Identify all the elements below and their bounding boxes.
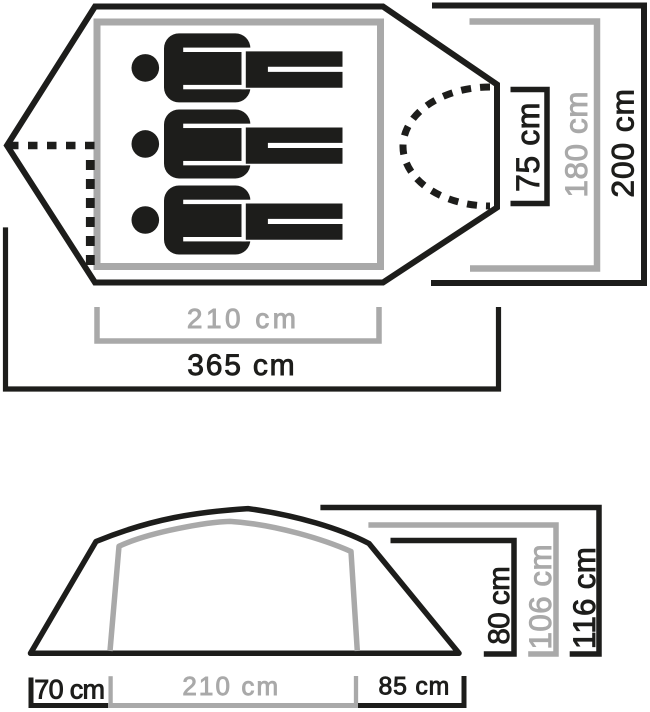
svg-text:75 cm: 75 cm bbox=[510, 102, 546, 192]
svg-text:200 cm: 200 cm bbox=[604, 88, 640, 197]
svg-text:85 cm: 85 cm bbox=[379, 674, 451, 701]
svg-text:365 cm: 365 cm bbox=[187, 349, 296, 382]
svg-text:180 cm: 180 cm bbox=[558, 91, 594, 198]
svg-text:116 cm: 116 cm bbox=[567, 547, 602, 649]
svg-text:210 cm: 210 cm bbox=[182, 671, 280, 701]
svg-text:70 cm: 70 cm bbox=[34, 675, 104, 705]
svg-text:106 cm: 106 cm bbox=[523, 544, 558, 650]
svg-text:210 cm: 210 cm bbox=[187, 303, 300, 334]
svg-text:80 cm: 80 cm bbox=[483, 567, 516, 645]
